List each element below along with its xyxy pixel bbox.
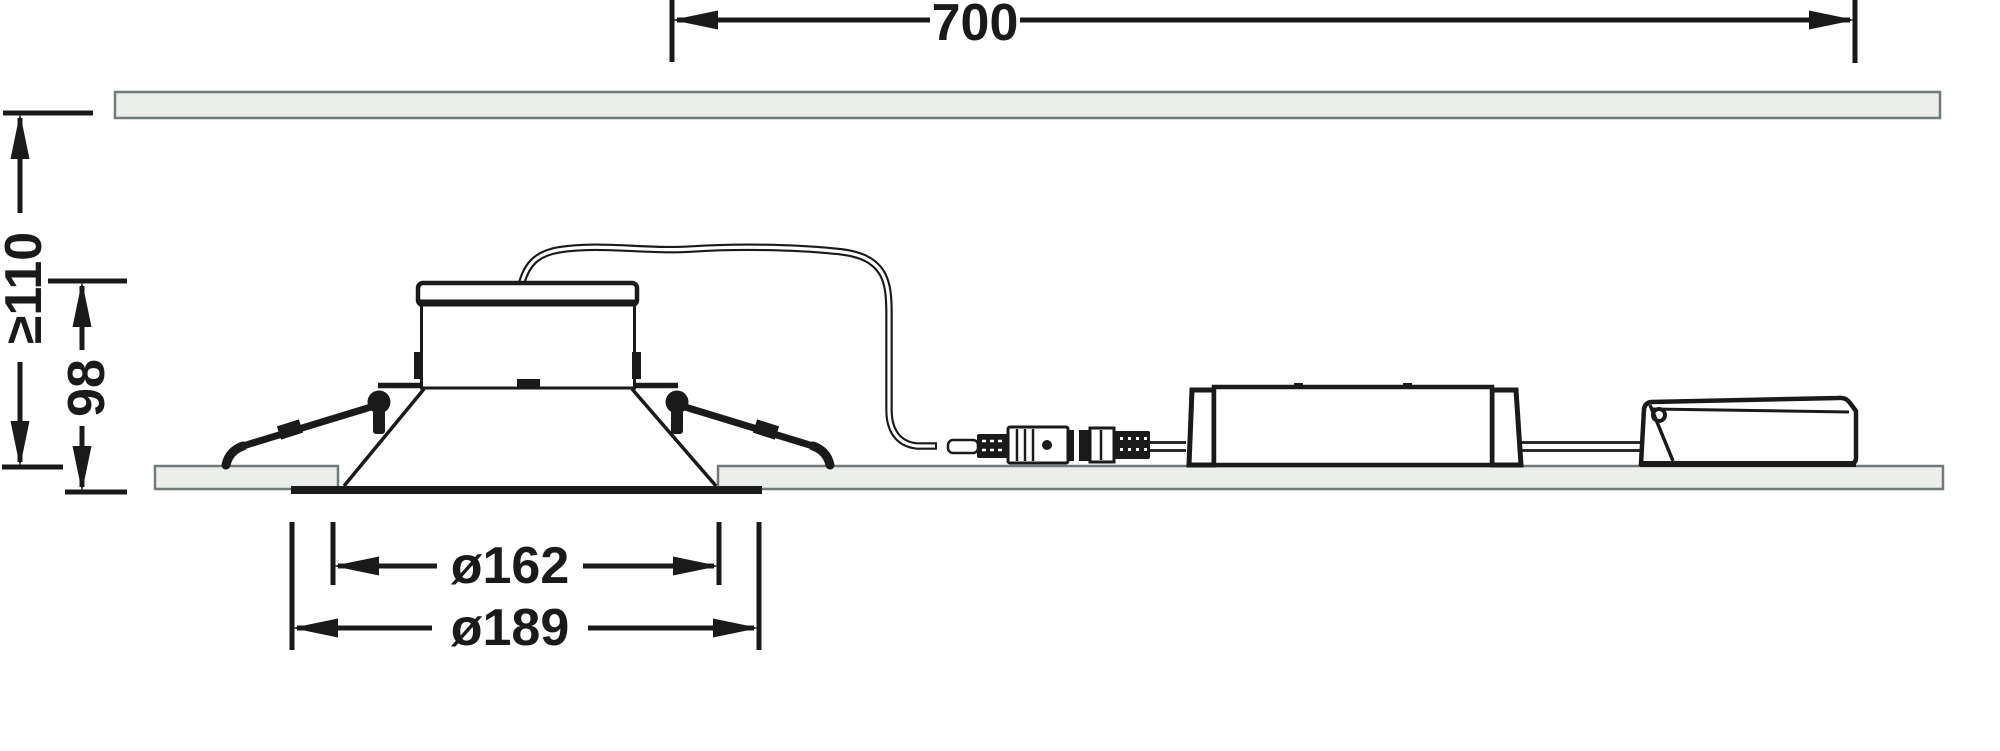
dimension-label: 700 [932,0,1019,52]
dimension-label: ø189 [451,599,570,657]
arrow-down-icon [73,446,92,492]
wire-connector-to-driver [1150,443,1186,451]
clip-arm [243,407,371,446]
clip-foot [226,446,243,465]
socket-strain-relief [1114,431,1150,459]
clip-arm [685,407,813,446]
arrow-up-icon [73,281,92,327]
arrow-left-icon [333,557,379,576]
connector-strain-relief [977,434,1008,458]
coupling-slot [1074,430,1079,461]
driver-housing [1214,387,1492,465]
inline-connector [948,427,1150,463]
dimension-label: 98 [58,359,116,417]
dimension-cutout-diameter: ø162 [333,522,719,595]
driver-box [1189,383,1521,465]
driver-top-tab [1294,383,1303,388]
arrow-left-icon [292,619,338,638]
ceiling-panel-top [115,92,1940,118]
clip-pin [373,410,385,434]
arrow-right-icon [713,619,759,638]
clip-foot [813,446,830,465]
driver-top-tab [1403,383,1412,388]
arrow-down-icon [11,421,30,467]
clip-pin [671,410,683,434]
dimension-fixture-height: 98 [48,281,127,492]
arrow-up-icon [11,113,30,159]
arrow-right-icon [1809,11,1855,30]
wire-driver-to-mains-box [1522,443,1640,451]
mains-connection-box [1640,398,1856,464]
dimension-label: ø162 [451,537,570,595]
trim-cone-fill [344,388,716,487]
clip-mount-left [414,352,423,379]
dimension-label: ≥110 [0,232,53,344]
plug-latch-button [1042,440,1052,450]
downlight-fixture [291,283,762,494]
fixture-bottom-tab [517,379,540,388]
clip-mount-right [632,352,641,379]
clip-collar [755,426,777,433]
ceiling-panel-bottom-right [718,466,1943,489]
arrow-right-icon [673,557,719,576]
mains-box-housing [1641,398,1856,464]
wire-ferrule [948,440,978,453]
ceiling-panel-bottom-left [155,466,338,489]
dimension-cable-length: 700 [672,0,1855,63]
fixture-body [422,305,635,388]
technical-drawing-recessed-downlight: 700 ≥110 98 ø162 ø189 [0,0,2000,751]
driver-end-cap-right [1492,390,1521,465]
driver-end-cap-left [1189,390,1214,465]
clip-collar [279,426,301,433]
arrow-left-icon [672,11,718,30]
fixture-flange [291,486,762,494]
